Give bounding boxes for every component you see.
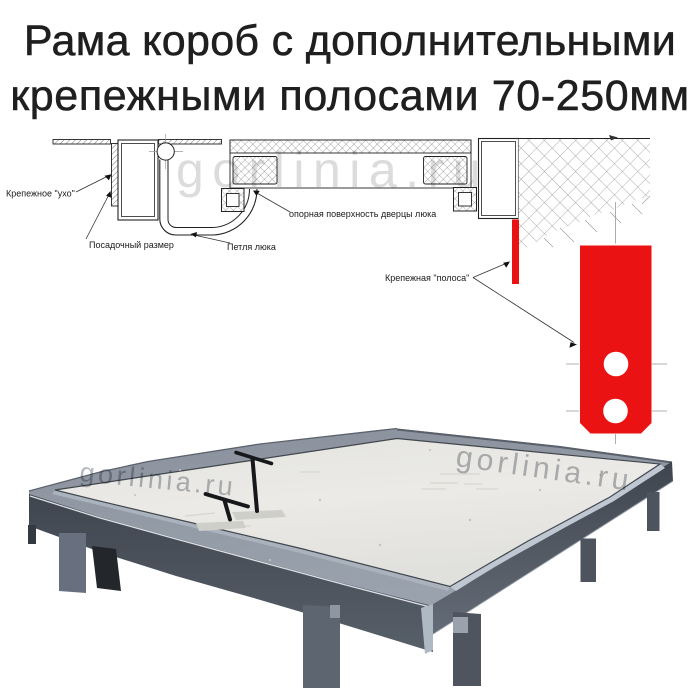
svg-text:gorlinia.ru: gorlinia.ru — [176, 142, 489, 198]
svg-text:Крепежная "полоса": Крепежная "полоса" — [385, 273, 469, 283]
svg-text:опорная поверхность дверцы люк: опорная поверхность дверцы люка — [289, 209, 436, 219]
svg-text:Петля люка: Петля люка — [227, 242, 276, 252]
svg-text:Посадочный размер: Посадочный размер — [89, 240, 174, 250]
svg-text:Крепежное "ухо": Крепежное "ухо" — [6, 189, 75, 199]
